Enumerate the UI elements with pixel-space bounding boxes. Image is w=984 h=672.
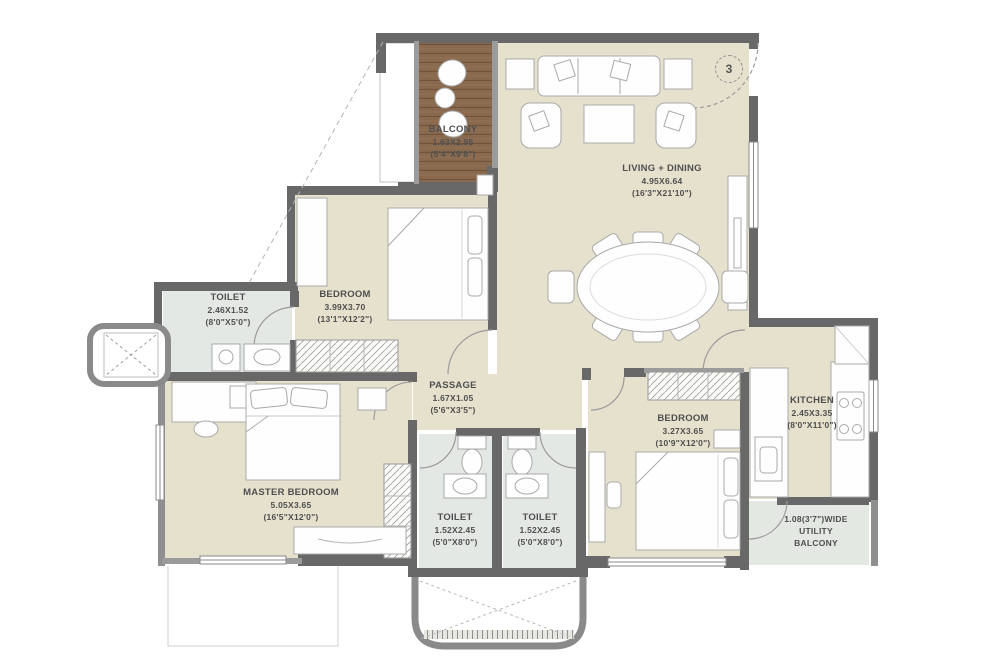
floor-plan-drawing <box>0 0 984 672</box>
floor-plan: BALCONY 1.63X2.95 (5'4"X9'8") LIVING + D… <box>0 0 984 672</box>
unit-number: 3 <box>726 62 733 76</box>
toilet-top-fixtures <box>212 344 290 371</box>
bay-projection <box>415 577 583 646</box>
wardrobe <box>296 340 398 372</box>
wardrobe <box>648 372 740 400</box>
unit-number-badge: 3 <box>715 55 743 83</box>
lobby-duct <box>90 326 168 384</box>
